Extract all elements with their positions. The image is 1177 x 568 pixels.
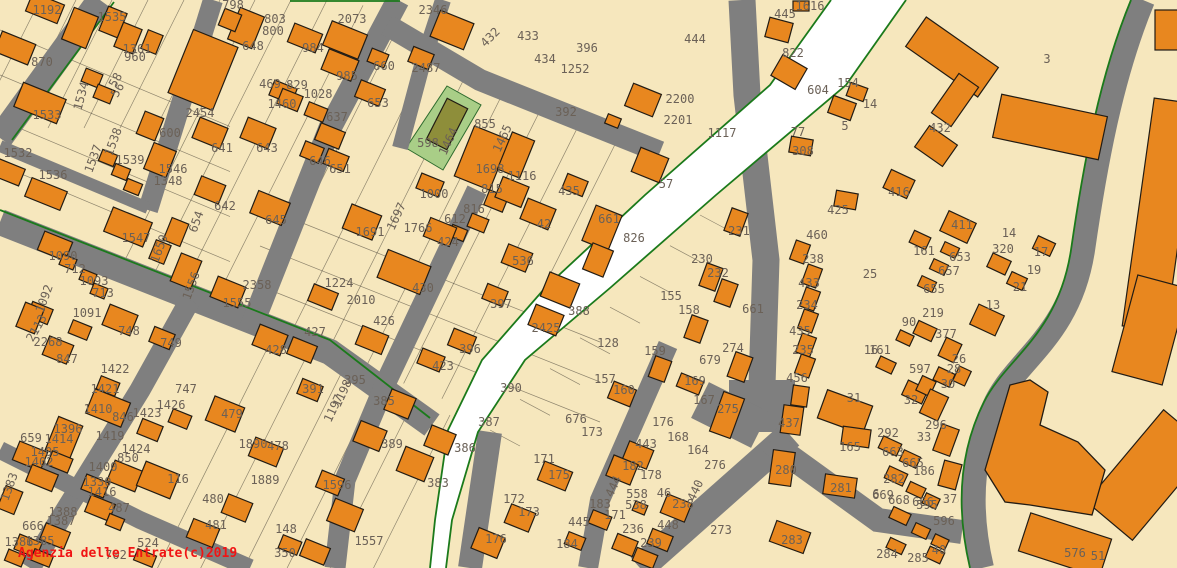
parcel-number: 444 xyxy=(684,32,706,46)
parcel-number: 234 xyxy=(796,298,818,312)
parcel-number: 1091 xyxy=(73,306,102,320)
parcel-number: 3 xyxy=(1043,52,1050,66)
parcel-number: 747 xyxy=(175,382,197,396)
parcel-number: 390 xyxy=(500,381,522,395)
parcel-number: 51 xyxy=(1091,549,1105,563)
parcel-number: 1414 xyxy=(45,432,74,446)
parcel-number: 870 xyxy=(31,55,53,69)
parcel-number: 612 xyxy=(444,212,466,226)
parcel-number: 1889 xyxy=(251,473,280,487)
parcel-number: 148 xyxy=(275,522,297,536)
parcel-number: 445 xyxy=(568,515,590,529)
copyright-watermark: Agenzia delle Entrate(c)2019 xyxy=(18,546,237,561)
parcel-number: 17 xyxy=(1034,245,1048,259)
parcel-number: 2425 xyxy=(532,321,561,335)
parcel-number: 679 xyxy=(699,353,721,367)
parcel-number: 160 xyxy=(613,383,635,397)
parcel-number: 1533 xyxy=(33,108,62,122)
parcel-number: 1596 xyxy=(323,478,352,492)
parcel-number: 186 xyxy=(913,464,935,478)
parcel-number: 285 xyxy=(907,551,929,565)
parcel-number: 984 xyxy=(302,41,324,55)
parcel-number: 275 xyxy=(717,402,739,416)
parcel-number: 13 xyxy=(986,298,1000,312)
parcel-number: 391 xyxy=(302,382,324,396)
parcel-number: 460 xyxy=(806,228,828,242)
parcel-number: 37 xyxy=(943,492,957,506)
map-canvas[interactable]: 1192153587013619605856153415331532153615… xyxy=(0,0,1177,568)
parcel-number: 46 xyxy=(657,486,671,500)
parcel-number: 1555 xyxy=(223,296,252,310)
building xyxy=(791,385,810,407)
parcel-number: 1400 xyxy=(89,460,118,474)
parcel-number: 25 xyxy=(863,267,877,281)
parcel-number: 33 xyxy=(917,430,931,444)
parcel-number: 653 xyxy=(949,250,971,264)
parcel-number: 1028 xyxy=(304,87,333,101)
parcel-number: 749 xyxy=(160,336,182,350)
parcel-number: 165 xyxy=(839,440,861,454)
parcel-number: 437 xyxy=(778,416,800,430)
parcel-number: 388 xyxy=(568,304,590,318)
parcel-number: 596 xyxy=(933,514,955,528)
parcel-number: 2346 xyxy=(419,3,448,17)
parcel-number: 42 xyxy=(537,217,551,231)
parcel-number: 480 xyxy=(202,492,224,506)
parcel-number: 2201 xyxy=(664,113,693,127)
parcel-number: 433 xyxy=(798,276,820,290)
parcel-number: 1532 xyxy=(4,146,33,160)
parcel-number: 171 xyxy=(533,452,555,466)
parcel-number: 164 xyxy=(687,443,709,457)
parcel-number: 443 xyxy=(635,437,657,451)
parcel-number: 676 xyxy=(565,412,587,426)
parcel-number: 178 xyxy=(640,468,662,482)
parcel-number: 40 xyxy=(932,543,946,557)
parcel-number: 77 xyxy=(791,125,805,139)
parcel-number: 536 xyxy=(512,254,534,268)
parcel-number: 1117 xyxy=(708,126,737,140)
parcel-number: 800 xyxy=(262,24,284,38)
parcel-number: 283 xyxy=(781,533,803,547)
parcel-number: 274 xyxy=(722,341,744,355)
parcel-number: 161 xyxy=(869,343,891,357)
parcel-number: 816 xyxy=(463,202,485,216)
parcel-number: 478 xyxy=(267,439,289,453)
parcel-number: 175 xyxy=(548,468,570,482)
parcel-number: 1000 xyxy=(420,187,449,201)
parcel-number: 641 xyxy=(211,141,233,155)
parcel-number: 2358 xyxy=(243,278,272,292)
parcel-number: 230 xyxy=(691,252,713,266)
parcel-number: 1536 xyxy=(39,168,68,182)
parcel-number: 456 xyxy=(786,371,808,385)
parcel-number: 1460 xyxy=(268,97,297,111)
parcel-number: 1557 xyxy=(355,534,384,548)
parcel-number: 424 xyxy=(437,235,459,249)
parcel-number: 668 xyxy=(888,493,910,507)
parcel-number: 653 xyxy=(367,96,389,110)
parcel-number: 396 xyxy=(576,41,598,55)
parcel-number: 1890 xyxy=(239,437,268,451)
parcel-number: 651 xyxy=(329,162,351,176)
parcel-number: 1421 xyxy=(91,382,120,396)
parcel-number: 2200 xyxy=(666,92,695,106)
parcel-number: 158 xyxy=(678,303,700,317)
parcel-number: 385 xyxy=(373,394,395,408)
parcel-number: 427 xyxy=(304,325,326,339)
parcel-number: 657 xyxy=(938,264,960,278)
parcel-number: 661 xyxy=(598,212,620,226)
parcel-number: 308 xyxy=(792,144,814,158)
parcel-number: 172 xyxy=(503,492,525,506)
parcel-number: 2010 xyxy=(347,293,376,307)
parcel-number: 655 xyxy=(923,282,945,296)
parcel-number: 643 xyxy=(256,141,278,155)
parcel-number: 1535 xyxy=(98,10,127,24)
parcel-number: 14 xyxy=(1002,226,1016,240)
parcel-number: 396 xyxy=(459,342,481,356)
parcel-number: 448 xyxy=(657,518,679,532)
parcel-number: 435 xyxy=(789,324,811,338)
parcel-number: 1539 xyxy=(116,153,145,167)
parcel-number: 1547 xyxy=(122,231,151,245)
parcel-number: 232 xyxy=(707,266,729,280)
parcel-number: 2487 xyxy=(412,61,441,75)
parcel-number: 659 xyxy=(20,431,42,445)
parcel-number: 1252 xyxy=(561,62,590,76)
parcel-number: 154 xyxy=(837,76,859,90)
parcel-number: 173 xyxy=(518,505,540,519)
parcel-number: 276 xyxy=(704,458,726,472)
parcel-number: 660 xyxy=(373,59,395,73)
parcel-number: 1766 xyxy=(404,221,433,235)
parcel-number: 985 xyxy=(336,69,358,83)
parcel-number: 425 xyxy=(827,203,849,217)
parcel-number: 1090 xyxy=(49,249,78,263)
parcel-number: 479 xyxy=(221,407,243,421)
parcel-number: 855 xyxy=(474,117,496,131)
parcel-number: 161 xyxy=(913,244,935,258)
parcel-number: 2454 xyxy=(186,106,215,120)
parcel-number: 14 xyxy=(863,97,877,111)
parcel-number: 21 xyxy=(1013,280,1027,294)
parcel-number: 387 xyxy=(478,415,500,429)
parcel-number: 30 xyxy=(941,377,955,391)
parcel-number: 748 xyxy=(118,324,140,338)
parcel-number: 239 xyxy=(640,536,662,550)
parcel-number: 280 xyxy=(775,463,797,477)
parcel-number: 184 xyxy=(556,537,578,551)
parcel-number: 57 xyxy=(659,177,673,191)
parcel-number: 445 xyxy=(774,7,796,21)
parcel-number: 292 xyxy=(877,426,899,440)
parcel-number: 281 xyxy=(830,481,852,495)
parcel-number: 646 xyxy=(309,154,331,168)
parcel-number: 116 xyxy=(167,472,189,486)
parcel-number: 231 xyxy=(728,224,750,238)
parcel-number: 1387 xyxy=(47,514,76,528)
parcel-number: 167 xyxy=(693,393,715,407)
parcel-number: 847 xyxy=(56,352,78,366)
parcel-number: 538 xyxy=(625,498,647,512)
parcel-number: 320 xyxy=(992,242,1014,256)
parcel-number: 282 xyxy=(883,472,905,486)
parcel-number: 2268 xyxy=(34,335,63,349)
parcel-number: 428 xyxy=(265,343,287,357)
parcel-number: 960 xyxy=(124,50,146,64)
parcel-number: 666 xyxy=(22,519,44,533)
parcel-number: 423 xyxy=(432,359,454,373)
parcel-number: 5 xyxy=(841,119,848,133)
parcel-number: 1224 xyxy=(325,276,354,290)
parcel-number: 176 xyxy=(652,415,674,429)
parcel-number: 284 xyxy=(876,547,898,561)
parcel-number: 386 xyxy=(454,441,476,455)
parcel-number: 273 xyxy=(710,523,732,537)
parcel-number: 389 xyxy=(381,437,403,451)
parcel-number: 846 xyxy=(112,410,134,424)
parcel-number: 377 xyxy=(935,327,957,341)
parcel-number: 90 xyxy=(902,315,916,329)
parcel-number: 128 xyxy=(597,336,619,350)
parcel-number: 416 xyxy=(888,185,910,199)
parcel-number: 595 xyxy=(916,498,938,512)
parcel-number: 604 xyxy=(807,83,829,97)
parcel-number: 155 xyxy=(660,289,682,303)
parcel-number: 487 xyxy=(108,501,130,515)
parcel-number: 1616 xyxy=(796,0,825,13)
parcel-number: 637 xyxy=(326,110,348,124)
parcel-number: 600 xyxy=(159,126,181,140)
parcel-number: 1698 xyxy=(476,162,505,176)
parcel-number: 31 xyxy=(847,391,861,405)
parcel-number: 383 xyxy=(427,476,449,490)
parcel-number: 481 xyxy=(205,518,227,532)
parcel-number: 169 xyxy=(684,374,706,388)
parcel-number: 1192 xyxy=(33,3,62,17)
parcel-number: 1402 xyxy=(25,455,54,469)
parcel-number: 28 xyxy=(947,362,961,376)
parcel-number: 663 xyxy=(882,445,904,459)
parcel-number: 350 xyxy=(274,546,296,560)
parcel-number: 597 xyxy=(909,362,931,376)
parcel-number: 32 xyxy=(904,393,918,407)
building xyxy=(1155,10,1177,50)
parcel-number: 432 xyxy=(929,121,951,135)
parcel-number: 850 xyxy=(117,451,139,465)
map-viewport: 1192153587013619605856153415331532153615… xyxy=(0,0,1177,568)
parcel-number: 1410 xyxy=(84,402,113,416)
parcel-number: 1426 xyxy=(157,398,186,412)
parcel-number: 822 xyxy=(782,46,804,60)
parcel-number: 238 xyxy=(802,252,824,266)
parcel-number: 171 xyxy=(604,508,626,522)
parcel-number: 235 xyxy=(792,343,814,357)
parcel-number: 1422 xyxy=(101,362,130,376)
parcel-number: 1419 xyxy=(96,429,125,443)
parcel-number: 176 xyxy=(485,532,507,546)
parcel-number: 392 xyxy=(555,105,577,119)
parcel-number: 433 xyxy=(517,29,539,43)
parcel-number: 1116 xyxy=(508,169,537,183)
parcel-number: 642 xyxy=(214,199,236,213)
parcel-number: 2073 xyxy=(338,12,367,26)
parcel-number: 426 xyxy=(373,314,395,328)
parcel-number: 435 xyxy=(558,184,580,198)
parcel-number: 826 xyxy=(623,231,645,245)
parcel-number: 219 xyxy=(922,306,944,320)
parcel-number: 798 xyxy=(222,0,244,12)
parcel-number: 19 xyxy=(1027,263,1041,277)
parcel-number: 576 xyxy=(1064,546,1086,560)
parcel-number: 469 xyxy=(259,77,281,91)
parcel-number: 648 xyxy=(242,39,264,53)
parcel-number: 661 xyxy=(742,302,764,316)
parcel-number: 397 xyxy=(490,297,512,311)
parcel-number: 1416 xyxy=(88,485,117,499)
parcel-number: 1691 xyxy=(356,225,385,239)
parcel-number: 168 xyxy=(667,430,689,444)
parcel-number: 159 xyxy=(644,344,666,358)
parcel-number: 173 xyxy=(581,425,603,439)
parcel-number: 434 xyxy=(534,52,556,66)
parcel-number: 713 xyxy=(92,286,114,300)
parcel-number: 645 xyxy=(265,213,287,227)
parcel-number: 430 xyxy=(412,281,434,295)
parcel-number: 236 xyxy=(622,522,644,536)
parcel-number: 411 xyxy=(951,218,973,232)
parcel-number: 815 xyxy=(481,182,503,196)
parcel-number: 598 xyxy=(417,136,439,150)
parcel-number: 1348 xyxy=(154,174,183,188)
